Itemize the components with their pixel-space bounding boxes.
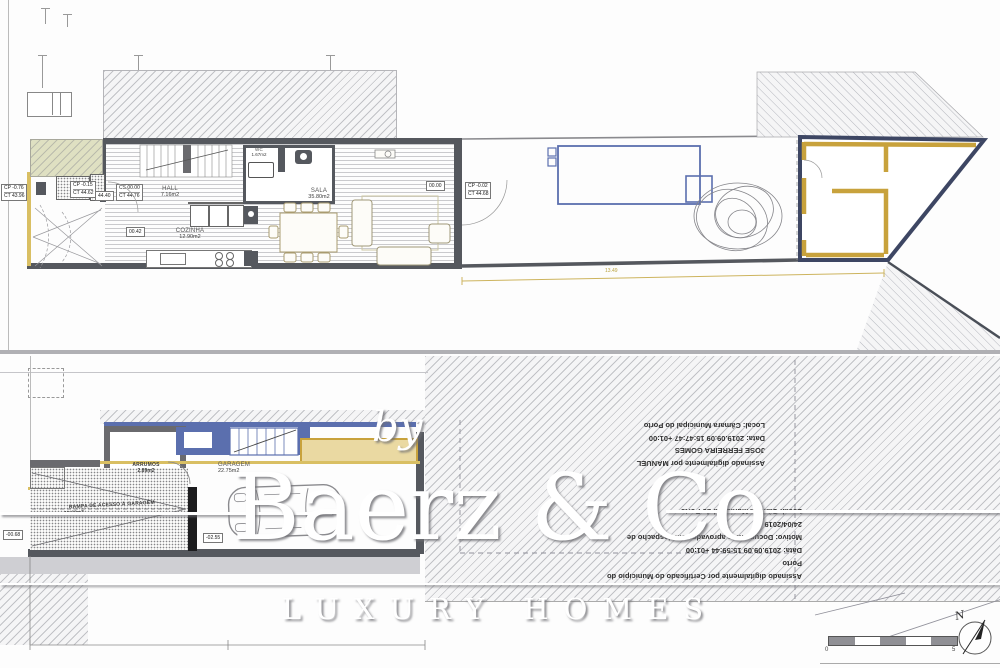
digital-signature-manuel: Assinado digitalmente por MANUEL JOSE FE…	[593, 416, 765, 469]
spot-level: -02.55	[203, 533, 223, 543]
upper-plan-drawing	[0, 0, 1000, 352]
pointed-room	[800, 137, 984, 260]
scale-bar-five: 5	[952, 647, 955, 653]
neighbour-hatch-se	[856, 262, 1000, 352]
room-label-arrumos: ARRUMOS 2.89m2	[122, 462, 170, 474]
entry-fan-curves	[33, 205, 102, 268]
scale-bar-zero: 0	[825, 647, 828, 653]
watermark-rule	[666, 510, 1000, 513]
skylight	[686, 176, 712, 202]
svg-text:N: N	[953, 608, 967, 623]
scale-bar	[828, 636, 958, 646]
neighbour-hatch-ne	[757, 72, 983, 137]
digital-signature-municipio: Assinado digitalmente por Certificado do…	[537, 505, 802, 583]
tree-icon	[688, 178, 782, 260]
watermark-rule	[0, 583, 1000, 585]
north-arrow-icon: N	[953, 608, 991, 654]
yellow-dimension-line	[462, 269, 884, 285]
stairs-icon	[140, 145, 232, 177]
dimension-line	[30, 556, 425, 650]
terrace	[462, 136, 798, 266]
skylight	[558, 146, 700, 204]
sofa-group	[352, 150, 450, 265]
dining-table	[269, 203, 348, 262]
door-arc	[168, 462, 190, 484]
watermark-rule	[0, 512, 332, 515]
stairs-icon	[230, 428, 298, 455]
border-tick	[820, 663, 1000, 664]
boundary-dashed	[460, 360, 1000, 638]
floor-plan-sheet: WC 1.67m2 HALL 7.16m2 COZINHA 12.90m2 SA…	[0, 0, 1000, 668]
